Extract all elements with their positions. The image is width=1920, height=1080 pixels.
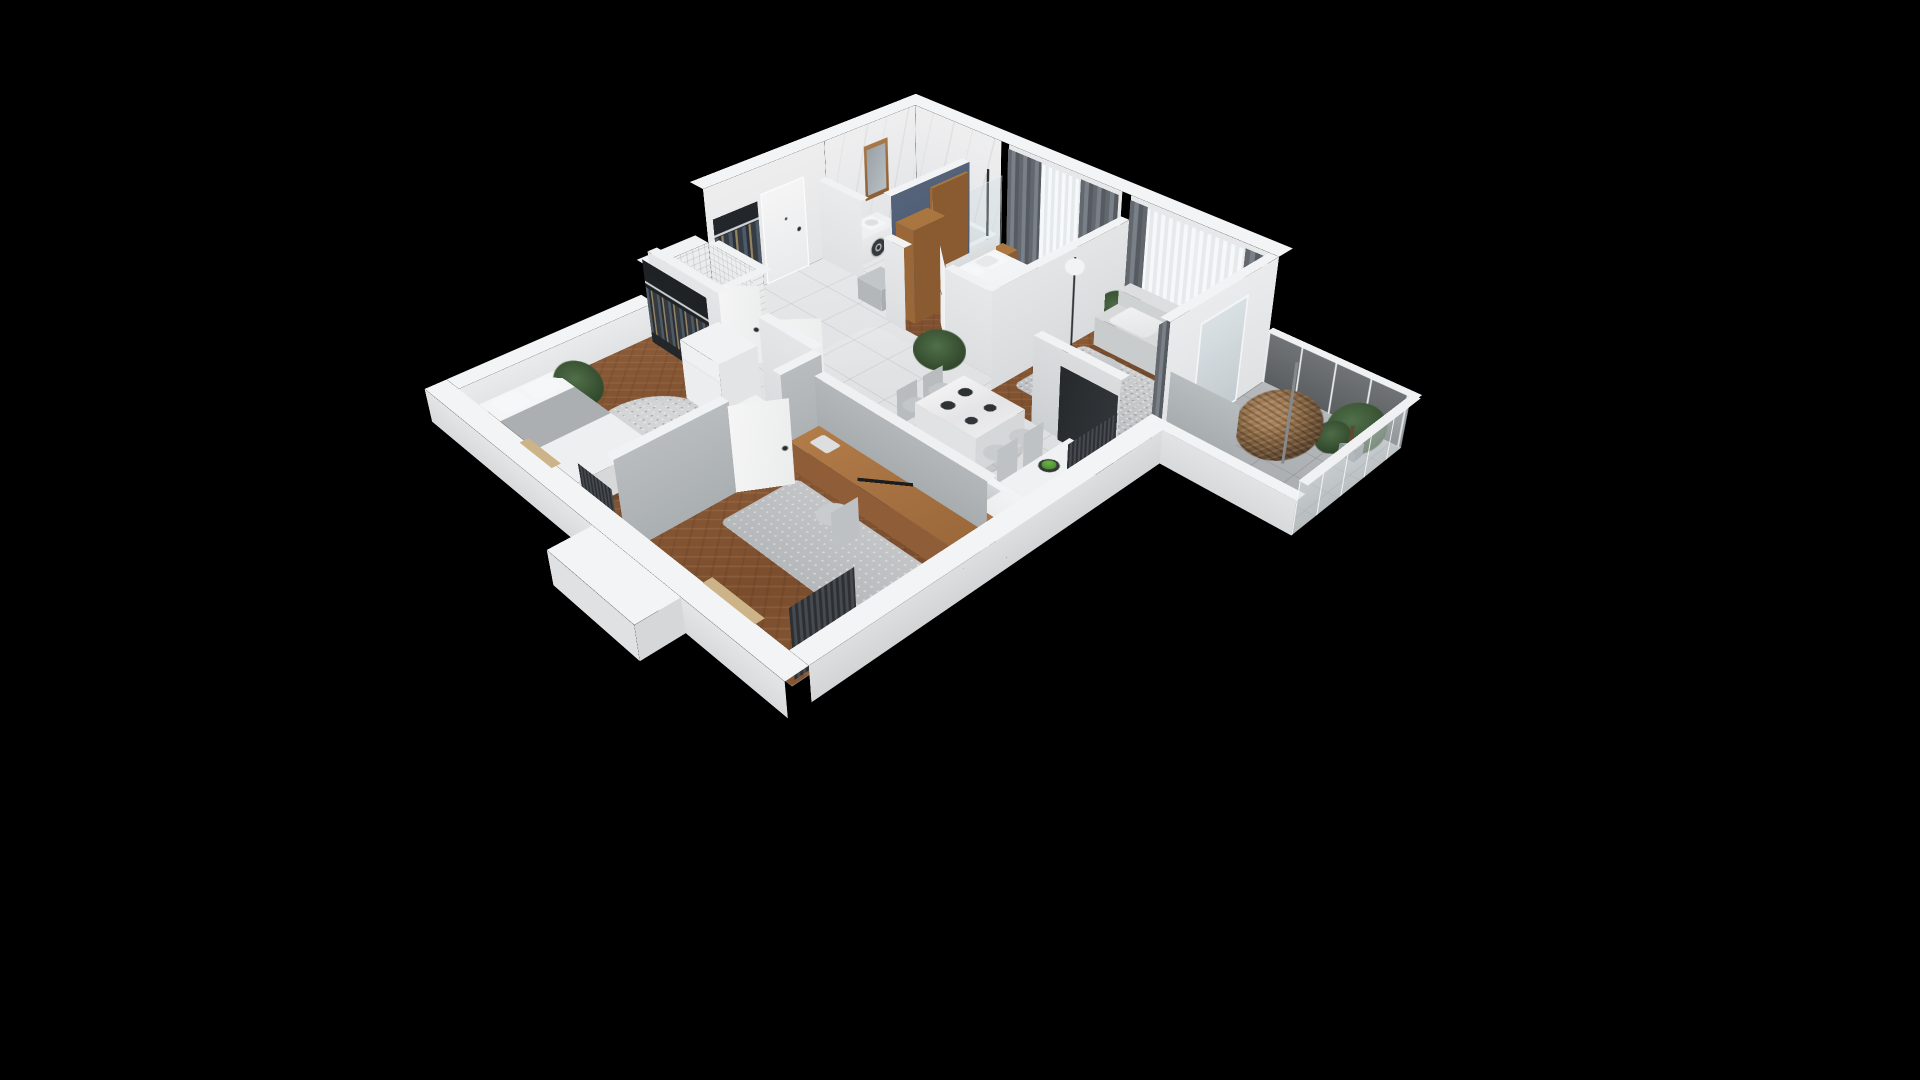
floorplan-scene <box>429 202 1418 836</box>
door-study <box>727 398 795 493</box>
apartment-3d-floorplan-render <box>0 0 1920 1080</box>
wall-bedroom-south-a <box>884 238 906 330</box>
